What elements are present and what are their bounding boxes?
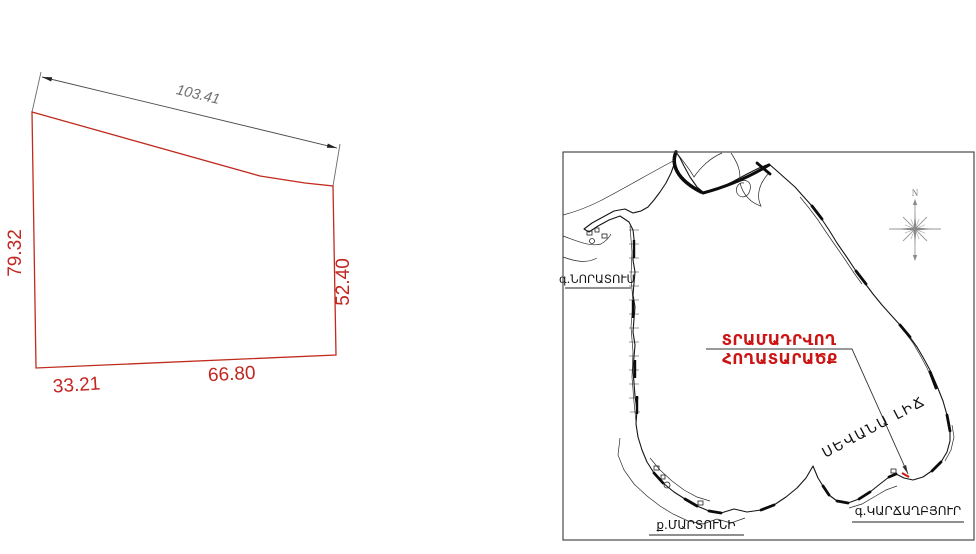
compass-north-arrow: [913, 199, 917, 205]
settlement-label-martuni: ք.ՄԱՐՏՈՒՆԻ: [656, 518, 735, 532]
northwest-contour-3: [563, 257, 597, 261]
location-map: ՏՐԱՄԱԴՐՎՈՂ ՀՈՂԱՏԱՐԱԾՔ ՍԵՎԱՆԱ ԼԻՃ գ.ՆՈՐԱՏ…: [559, 152, 974, 540]
compass-north-label: N: [912, 188, 919, 198]
parcel-outline: [32, 112, 336, 368]
compass-south-arrow: [913, 255, 917, 261]
northwest-contour-2: [563, 234, 611, 245]
extension-line-left: [32, 72, 41, 112]
compass-rose: N: [889, 188, 941, 261]
dimension-label-top: 103.41: [174, 82, 221, 108]
land-annotation-line1: ՏՐԱՄԱԴՐՎՈՂ: [722, 331, 837, 349]
east-shore-parallel: [905, 332, 933, 381]
land-annotation-line2: ՀՈՂԱՏԱՐԱԾՔ: [722, 350, 838, 368]
noratus-structures: [587, 228, 607, 244]
cadastral-plan-sheet: 103.41 79.32 52.40 33.21 66.80: [0, 0, 976, 554]
dimension-label-right: 52.40: [333, 258, 354, 306]
northwest-contour-1: [563, 160, 675, 215]
plan-drawing: 103.41 79.32 52.40 33.21 66.80: [0, 0, 976, 554]
parcel-plan: 103.41 79.32 52.40 33.21 66.80: [5, 72, 354, 398]
settlement-label-noratus: գ.ՆՈՐԱՏՈՒՍ: [559, 272, 635, 286]
northeast-dark-patches: [757, 163, 950, 471]
dimension-label-left: 79.32: [5, 229, 26, 277]
extension-line-right: [333, 144, 340, 186]
lake-name-label: ՍԵՎԱՆԱ ԼԻՃ: [820, 393, 929, 461]
northeast-shore-parallel: [800, 197, 862, 284]
karchaghbyur-structure: [891, 469, 896, 473]
settlement-label-karchaghbyur: գ.ԿԱՐՃԱՂԲՅՈՒՐ: [855, 504, 962, 518]
dimension-arrow-left: [42, 77, 52, 82]
dimension-label-bottom-right: 66.80: [207, 363, 256, 386]
north-shore-dark-arc: [703, 165, 769, 193]
dimension-label-bottom-left: 33.21: [52, 373, 101, 397]
dimension-arrow-right: [327, 144, 337, 149]
